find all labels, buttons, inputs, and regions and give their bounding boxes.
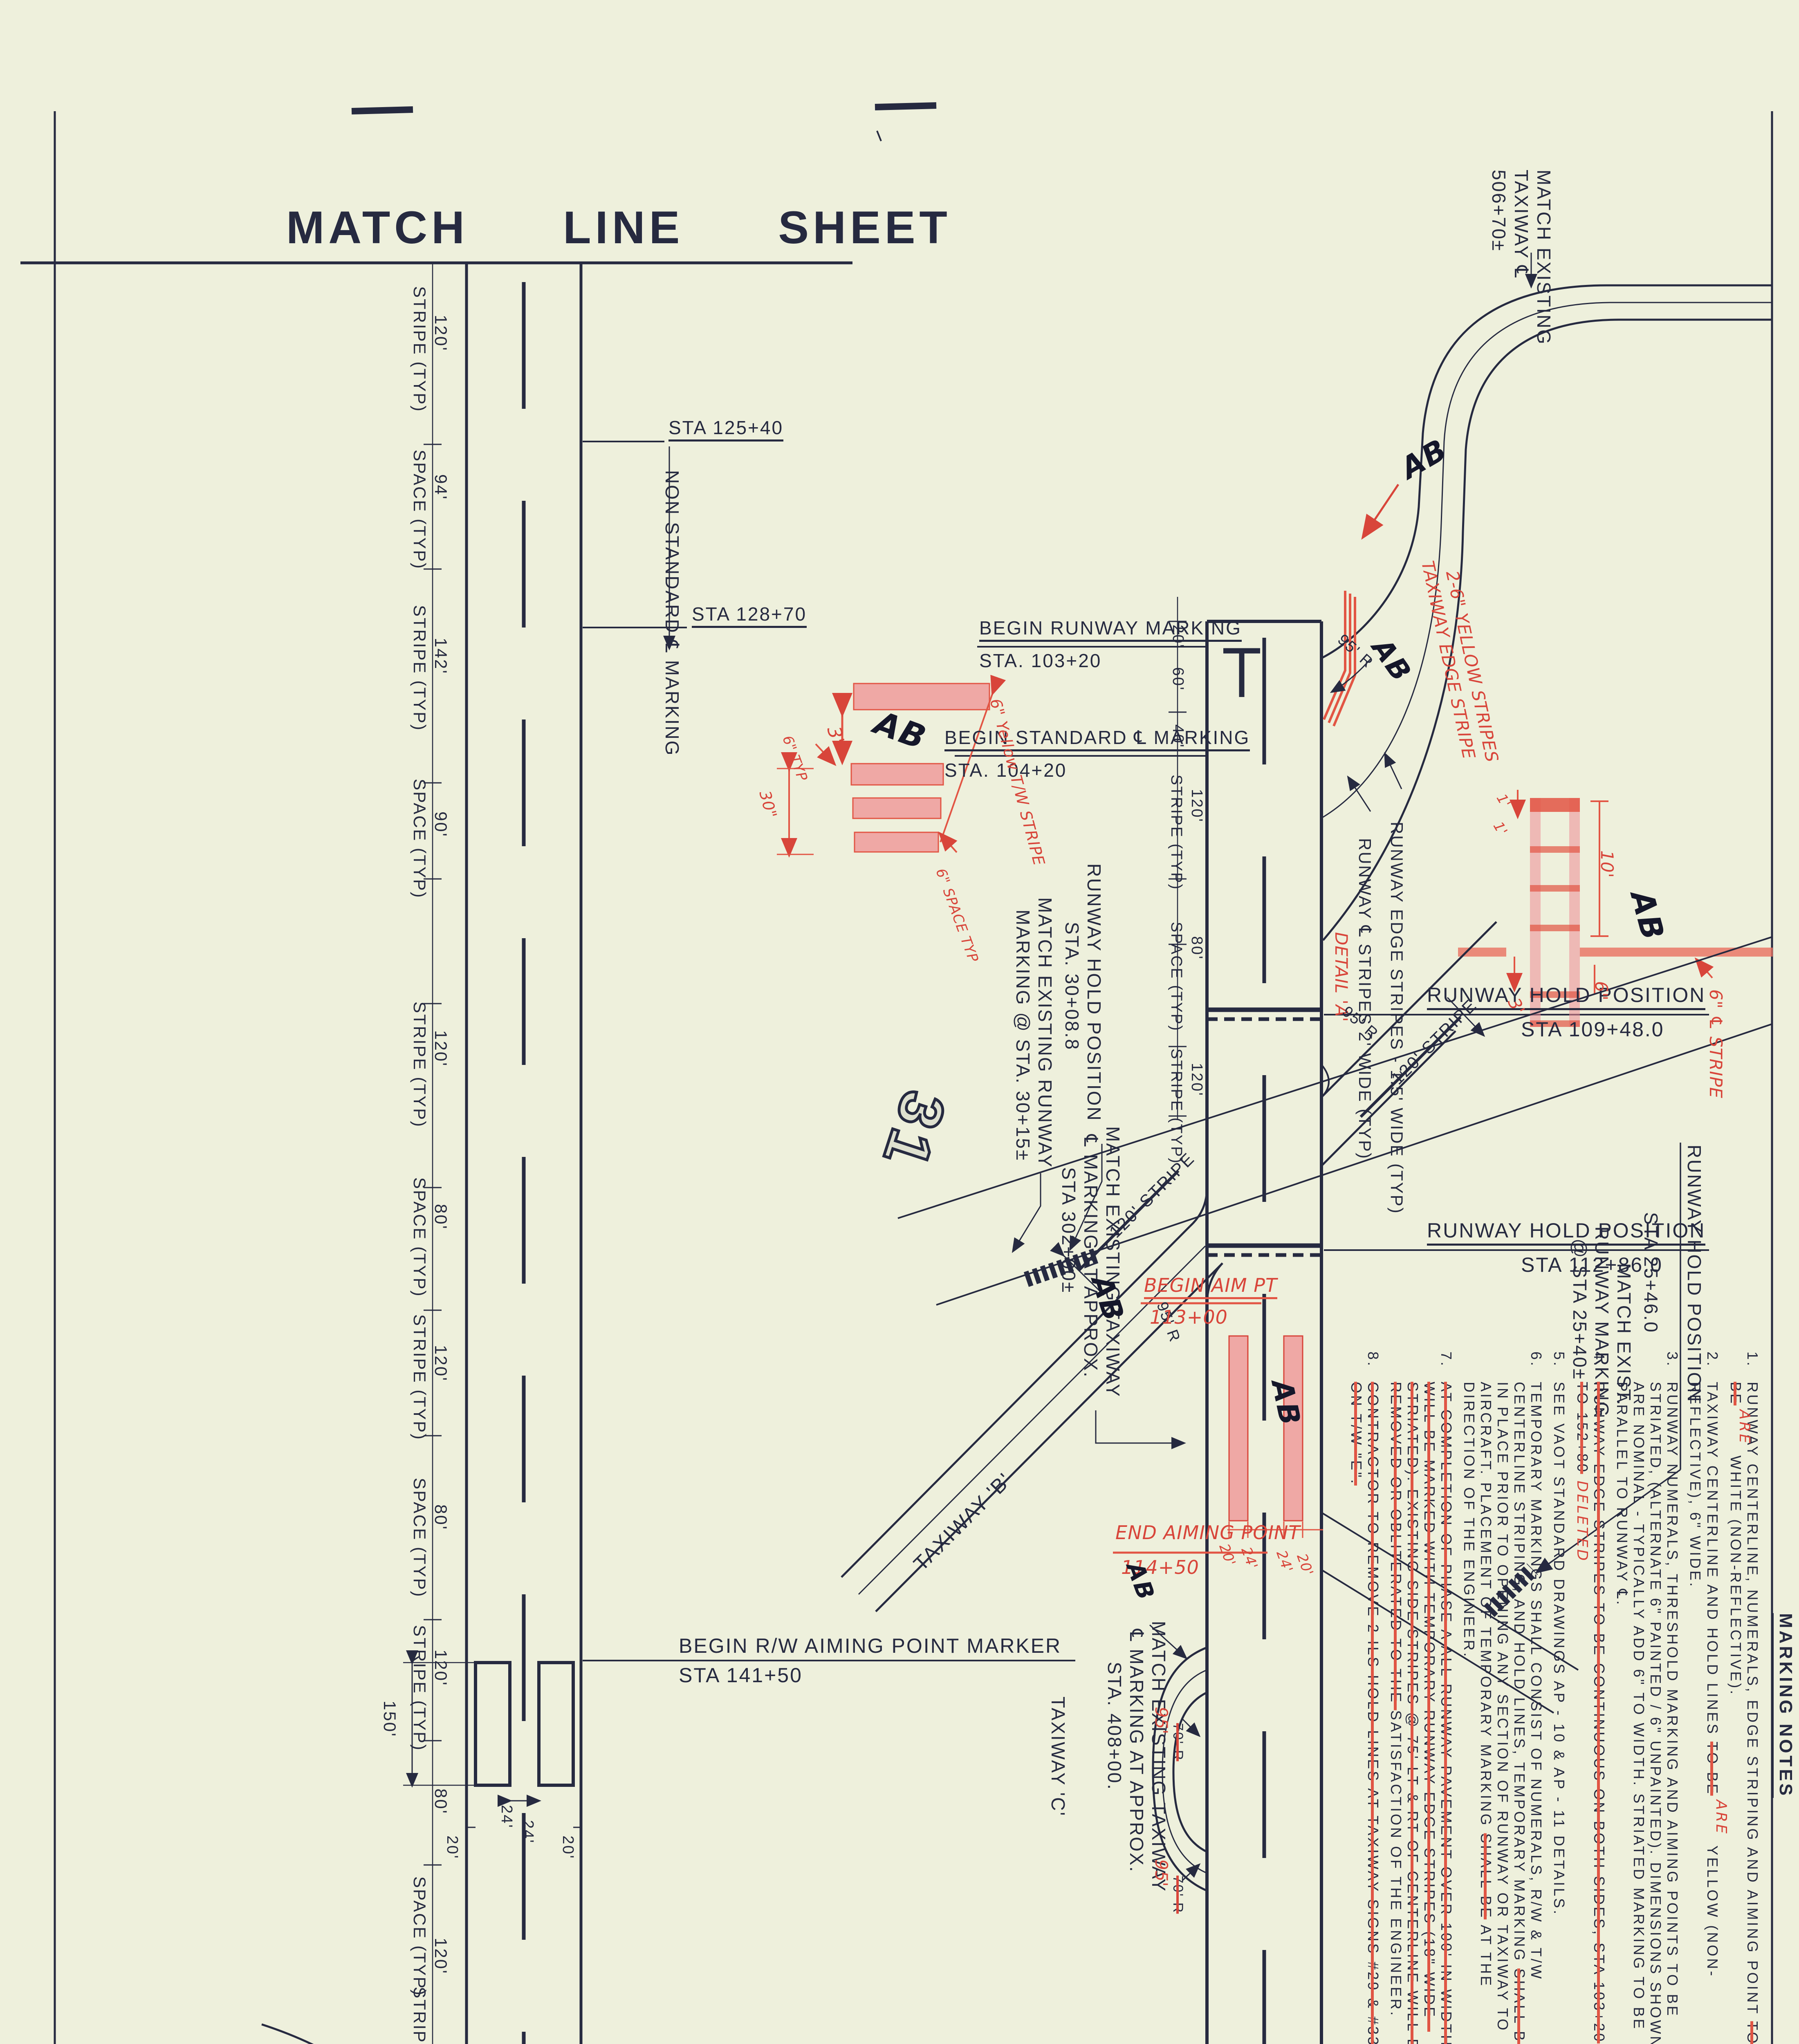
dim-value: 120'	[1188, 789, 1205, 823]
marking-note: 3.RUNWAY NUMERALS, THRESHOLD MARKING AND…	[1614, 1351, 1681, 2044]
match-taxiway-506-line1: MATCH EXISTING	[1534, 170, 1554, 345]
dim-label: STRIPE (TYP)	[410, 1625, 428, 1751]
match-exist-runway-30-1: MATCH EXISTING RUNWAY	[1035, 897, 1055, 1168]
marking-notes-list: 1.RUNWAY CENTERLINE, NUMERALS, EDGE STRI…	[1348, 1351, 1761, 2044]
hold-position-2: RUNWAY HOLD POSITION	[1427, 1220, 1705, 1246]
begin-aiming-sta: STA 141+50	[679, 1665, 803, 1686]
cl-stripe-6in-label: 6" ℄ STRIPE	[1707, 989, 1725, 1098]
dim-label: STRIPE (TYP)	[410, 286, 428, 412]
match-line-sheet-top: MATCH LINE SHEET	[286, 204, 951, 252]
dim-label: SPACE (TYP)	[410, 450, 428, 570]
radius-95-red-2: 95'	[1152, 1859, 1170, 1887]
left-runway	[204, 263, 1075, 2044]
dim-value: 80'	[432, 1504, 450, 1531]
marking-note: 1.RUNWAY CENTERLINE, NUMERALS, EDGE STRI…	[1727, 1351, 1761, 2044]
taxiway-c-label: TAXIWAY 'C'	[1048, 1697, 1068, 1817]
dim-label: STRIPE (TYP)	[410, 1987, 428, 2044]
marking-note: 6.TEMPORARY MARKINGS SHALL CONSIST OF NU…	[1461, 1351, 1545, 2044]
dim-24: 24'	[519, 1820, 536, 1844]
dim-value: 120'	[432, 1030, 450, 1067]
begin-runway-marking: BEGIN RUNWAY MARKING	[979, 618, 1242, 642]
dim-label: SPACE (TYP)	[410, 1478, 428, 1598]
hold-position-1-sta: STA 109+48.0	[1521, 1019, 1664, 1040]
dim-label: STRIPE (TYP)	[410, 1002, 428, 1128]
dim-value: 80'	[1188, 936, 1205, 960]
begin-standard-cl-marking: BEGIN STANDARD ℄ MARKING	[944, 728, 1250, 751]
match-taxiway-506-line2: TAXIWAY ℄	[1512, 170, 1531, 279]
match-taxiway-506-line3: 506+70±	[1489, 170, 1509, 252]
drawing-sheet: MATCH LINE SHEET MATCH LINE SHEET AIP 3-…	[0, 0, 1799, 2044]
ladder-dim-10ft: 10'	[1598, 850, 1616, 878]
dim-24: 24'	[498, 1805, 514, 1829]
marking-notes-title: MARKING NOTES	[1772, 1613, 1796, 1798]
dim-label: SPACE (TYP)	[410, 1876, 428, 1997]
marking-note: 5.SEE VAOT STANDARD DRAWINGS AP - 10 & A…	[1551, 1351, 1568, 2044]
dim-value: 120'	[432, 1345, 450, 1382]
dim-label: SPACE (TYP)	[410, 779, 428, 899]
dim-value: 142'	[432, 638, 450, 675]
begin-aiming-callout: BEGIN R/W AIMING POINT MARKER	[679, 1635, 1061, 1657]
marking-note: 8.CONTRACTOR TO REMOVE 2 ILS HOLD LINES …	[1348, 1351, 1382, 2044]
marking-note: 4.RUNWAY EDGE STRIPES TO BE CONTINUOUS O…	[1574, 1351, 1608, 2044]
match-taxiway-302-1: MATCH EXISTING TAXIWAY	[1103, 1126, 1123, 1398]
dim-150: 150'	[381, 1701, 399, 1737]
dim-value: 94'	[432, 474, 450, 500]
dim-20: 20'	[444, 1836, 460, 1860]
match-taxiway-302-2: ℄ MARKING AT APPROX.	[1081, 1134, 1101, 1378]
match-taxiway-302-3: STA 302+00±	[1059, 1167, 1079, 1293]
hold-position-30-sta: STA. 30+08.8	[1062, 922, 1082, 1051]
hold-position-25-46-sta: STA 25+46.0	[1641, 1212, 1661, 1334]
begin-aim-pt: BEGIN AIM PT	[1144, 1275, 1277, 1299]
runway-hold-lines	[1207, 1010, 1709, 1255]
marking-notes: MARKING NOTES 1.RUNWAY CENTERLINE, NUMER…	[1342, 1351, 1796, 2044]
runway-cl-stripes-note: RUNWAY ℄ STRIPES 2' WIDE (TYP)	[1356, 838, 1374, 1160]
dim-label: SPACE (TYP)	[410, 1177, 428, 1298]
end-aiming-point: END AIMING POINT	[1115, 1523, 1301, 1542]
radius-70-struck-1: 70' R	[1170, 1723, 1185, 1761]
dim-value: 120'	[432, 1938, 450, 1975]
dim-label: STRIPE (TYP)	[410, 605, 428, 731]
dim-value: 120'	[432, 1650, 450, 1686]
marking-note: 7.AT COMPLETION OF PHASE A ALL RUNWAY PA…	[1388, 1351, 1455, 2044]
dim-label: SPACE (TYP)	[1168, 922, 1184, 1032]
non-standard-cl: NON STANDARD ℄ MARKING	[662, 470, 682, 756]
match-taxiway-408-2: ℄ MARKING AT APPROX.	[1127, 1629, 1146, 1873]
dim-label: STRIPE (TYP)	[410, 1314, 428, 1441]
begin-aim-sta: 113+00	[1150, 1307, 1228, 1327]
dim-label: STRIPE (TYP)	[1168, 1049, 1184, 1164]
dim-value: 120'	[432, 315, 450, 352]
dim-value: 80'	[432, 1204, 450, 1230]
hold-position-30: RUNWAY HOLD POSITION	[1084, 863, 1104, 1122]
dim-value: 120'	[1188, 1063, 1205, 1097]
radius-95-red-1: 95'	[1152, 1707, 1170, 1735]
begin-runway-marking-sta: STA. 103+20	[979, 651, 1101, 670]
sta-128-70: STA 128+70	[692, 604, 807, 628]
ladder-dim-6in: 6"	[1592, 981, 1610, 1001]
dim-60: 60'	[1169, 667, 1186, 691]
radius-70-struck-2: 70' R	[1170, 1876, 1185, 1914]
marking-note: 2.TAXIWAY CENTERLINE AND HOLD LINES TO B…	[1687, 1351, 1721, 2044]
dim-40: 40'	[1169, 724, 1186, 749]
sta-125-40: STA 125+40	[668, 418, 783, 442]
dim-value: 90'	[432, 811, 450, 838]
runway-edge-stripes-note: RUNWAY EDGE STRIPES - 1.5' WIDE (TYP)	[1388, 822, 1406, 1215]
dim-value: 80'	[432, 1788, 450, 1815]
dim-20: 20'	[1169, 625, 1186, 649]
match-taxiway-408-3: STA. 408+00.	[1105, 1662, 1124, 1791]
match-taxiway-408-1: MATCH EXISTING TAXIWAY	[1149, 1621, 1169, 1892]
dim-20: 20'	[559, 1836, 576, 1860]
match-exist-runway-30-2: MARKING @ STA. 30+15±	[1013, 910, 1033, 1161]
dim-label: STRIPE (TYP)	[1168, 775, 1184, 890]
